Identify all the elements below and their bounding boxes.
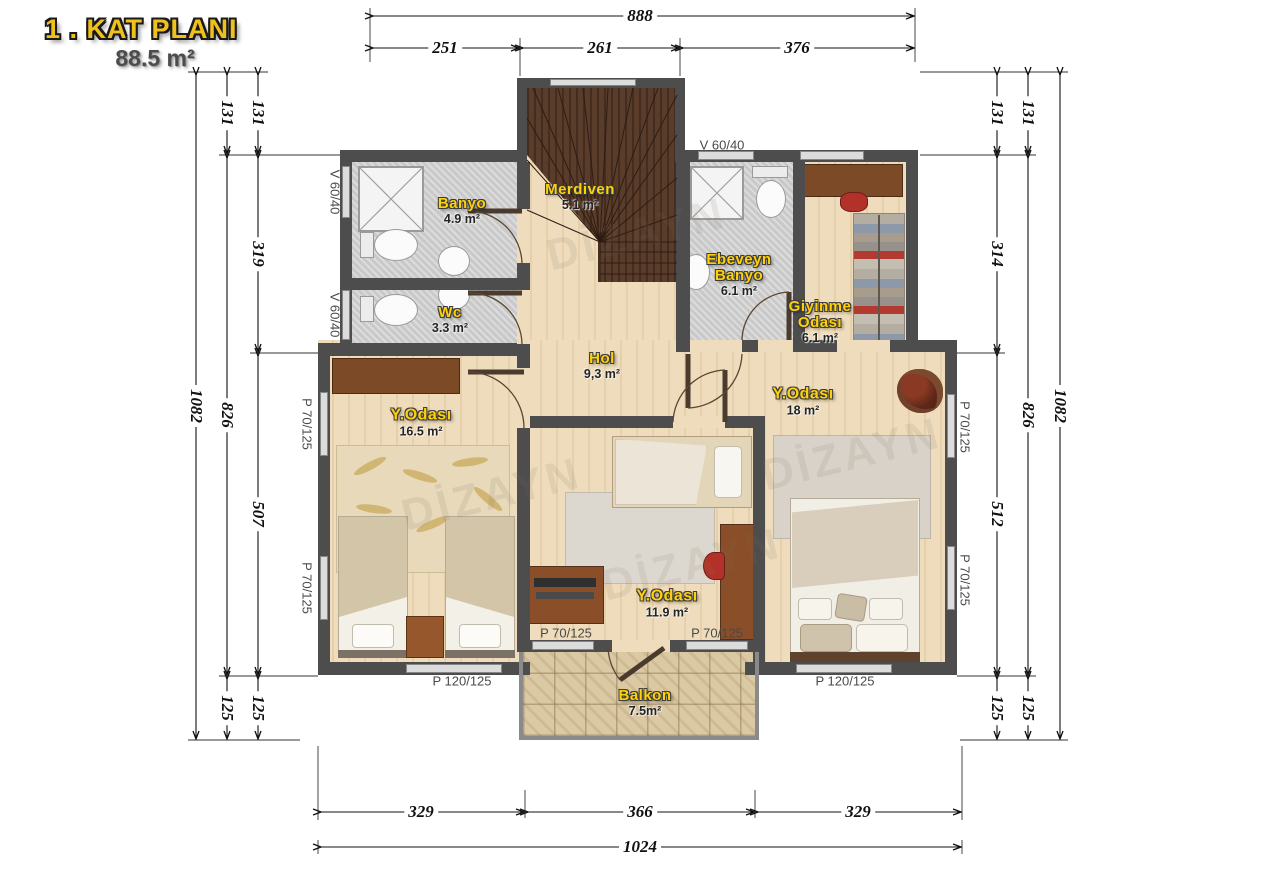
window-label: P 120/125 — [815, 674, 874, 689]
room-label-balkon: Balkon 7.5m² — [618, 688, 671, 718]
room-area: 6.1 m² — [789, 332, 852, 345]
dim-top-seg: 261 — [583, 38, 617, 58]
room-area: 11.9 m² — [636, 606, 697, 619]
dim-right-total: 1082 — [1050, 385, 1070, 427]
room-name: Ebeveyn — [706, 252, 771, 268]
room-area: 6.1 m² — [706, 285, 771, 298]
dim-left-total: 1082 — [186, 385, 206, 427]
plan-title: 1 . KAT PLANI — [45, 14, 265, 45]
room-area: 9,3 m² — [584, 368, 620, 381]
dim-right-inner: 512 — [987, 497, 1007, 531]
dim-right-inner: 131 — [987, 96, 1007, 130]
room-name: Banyo — [706, 268, 771, 284]
dim-top-total: 888 — [623, 6, 657, 26]
dim-right-inner: 125 — [987, 691, 1007, 725]
room-label-wc: Wc 3.3 m² — [432, 305, 468, 335]
room-area: 5.1 m² — [545, 199, 615, 212]
window-label: P 120/125 — [432, 674, 491, 689]
room-label-ebeveyn-banyo: Ebeveyn Banyo 6.1 m² — [706, 252, 771, 298]
dim-top-seg: 251 — [428, 38, 462, 58]
window-label: P 70/125 — [300, 398, 315, 450]
window-label: P 70/125 — [540, 626, 592, 641]
room-name: Odası — [789, 315, 852, 331]
room-name: Merdiven — [545, 182, 615, 198]
dim-right-mid: 826 — [1018, 398, 1038, 432]
window-label: V 60/40 — [328, 293, 343, 338]
floor-plan-canvas: 888 251 261 376 329 366 329 1024 1082 13… — [0, 0, 1280, 886]
window-label: P 70/125 — [691, 626, 743, 641]
window-label: V 60/40 — [700, 138, 745, 153]
window-label: P 70/125 — [300, 562, 315, 614]
window-label: P 70/125 — [958, 401, 973, 453]
room-label-yatak-sol: Y.Odası 16.5 m² — [390, 408, 451, 439]
dim-left-mid: 826 — [217, 398, 237, 432]
dim-bottom-seg: 329 — [841, 802, 875, 822]
room-name: Banyo — [438, 196, 486, 212]
room-name: Y.Odası — [772, 387, 833, 404]
plan-title-block: 1 . KAT PLANI 88.5 m² — [45, 14, 265, 72]
linework-overlay — [0, 0, 1280, 886]
dim-left-mid: 131 — [217, 96, 237, 130]
dim-bottom-total: 1024 — [619, 837, 661, 857]
plan-total-area: 88.5 m² — [45, 45, 265, 72]
room-area: 3.3 m² — [432, 322, 468, 335]
dim-bottom-seg: 329 — [404, 802, 438, 822]
dim-bottom-seg: 366 — [623, 802, 657, 822]
window-label: V 60/40 — [328, 170, 343, 215]
room-name: Wc — [432, 305, 468, 321]
room-label-banyo: Banyo 4.9 m² — [438, 196, 486, 226]
dim-left-inner: 507 — [248, 497, 268, 531]
dim-top-seg: 376 — [780, 38, 814, 58]
room-label-giyinme: Giyinme Odası 6.1 m² — [789, 299, 852, 345]
dim-left-mid: 125 — [217, 691, 237, 725]
dim-left-inner: 125 — [248, 691, 268, 725]
room-area: 18 m² — [772, 404, 833, 417]
room-area: 16.5 m² — [390, 425, 451, 438]
window-label: P 70/125 — [958, 554, 973, 606]
room-name: Y.Odası — [390, 408, 451, 425]
dim-left-inner: 319 — [248, 237, 268, 271]
room-label-hol: Hol 9,3 m² — [584, 351, 620, 381]
room-label-merdiven: Merdiven 5.1 m² — [545, 182, 615, 212]
room-area: 7.5m² — [618, 705, 671, 718]
dim-right-mid: 125 — [1018, 691, 1038, 725]
room-area: 4.9 m² — [438, 213, 486, 226]
dim-right-inner: 314 — [987, 237, 1007, 271]
room-label-yatak-sag: Y.Odası 18 m² — [772, 387, 833, 418]
dim-left-inner: 131 — [248, 96, 268, 130]
dim-right-mid: 131 — [1018, 96, 1038, 130]
room-name: Giyinme — [789, 299, 852, 315]
room-name: Hol — [584, 351, 620, 367]
room-name: Balkon — [618, 688, 671, 704]
